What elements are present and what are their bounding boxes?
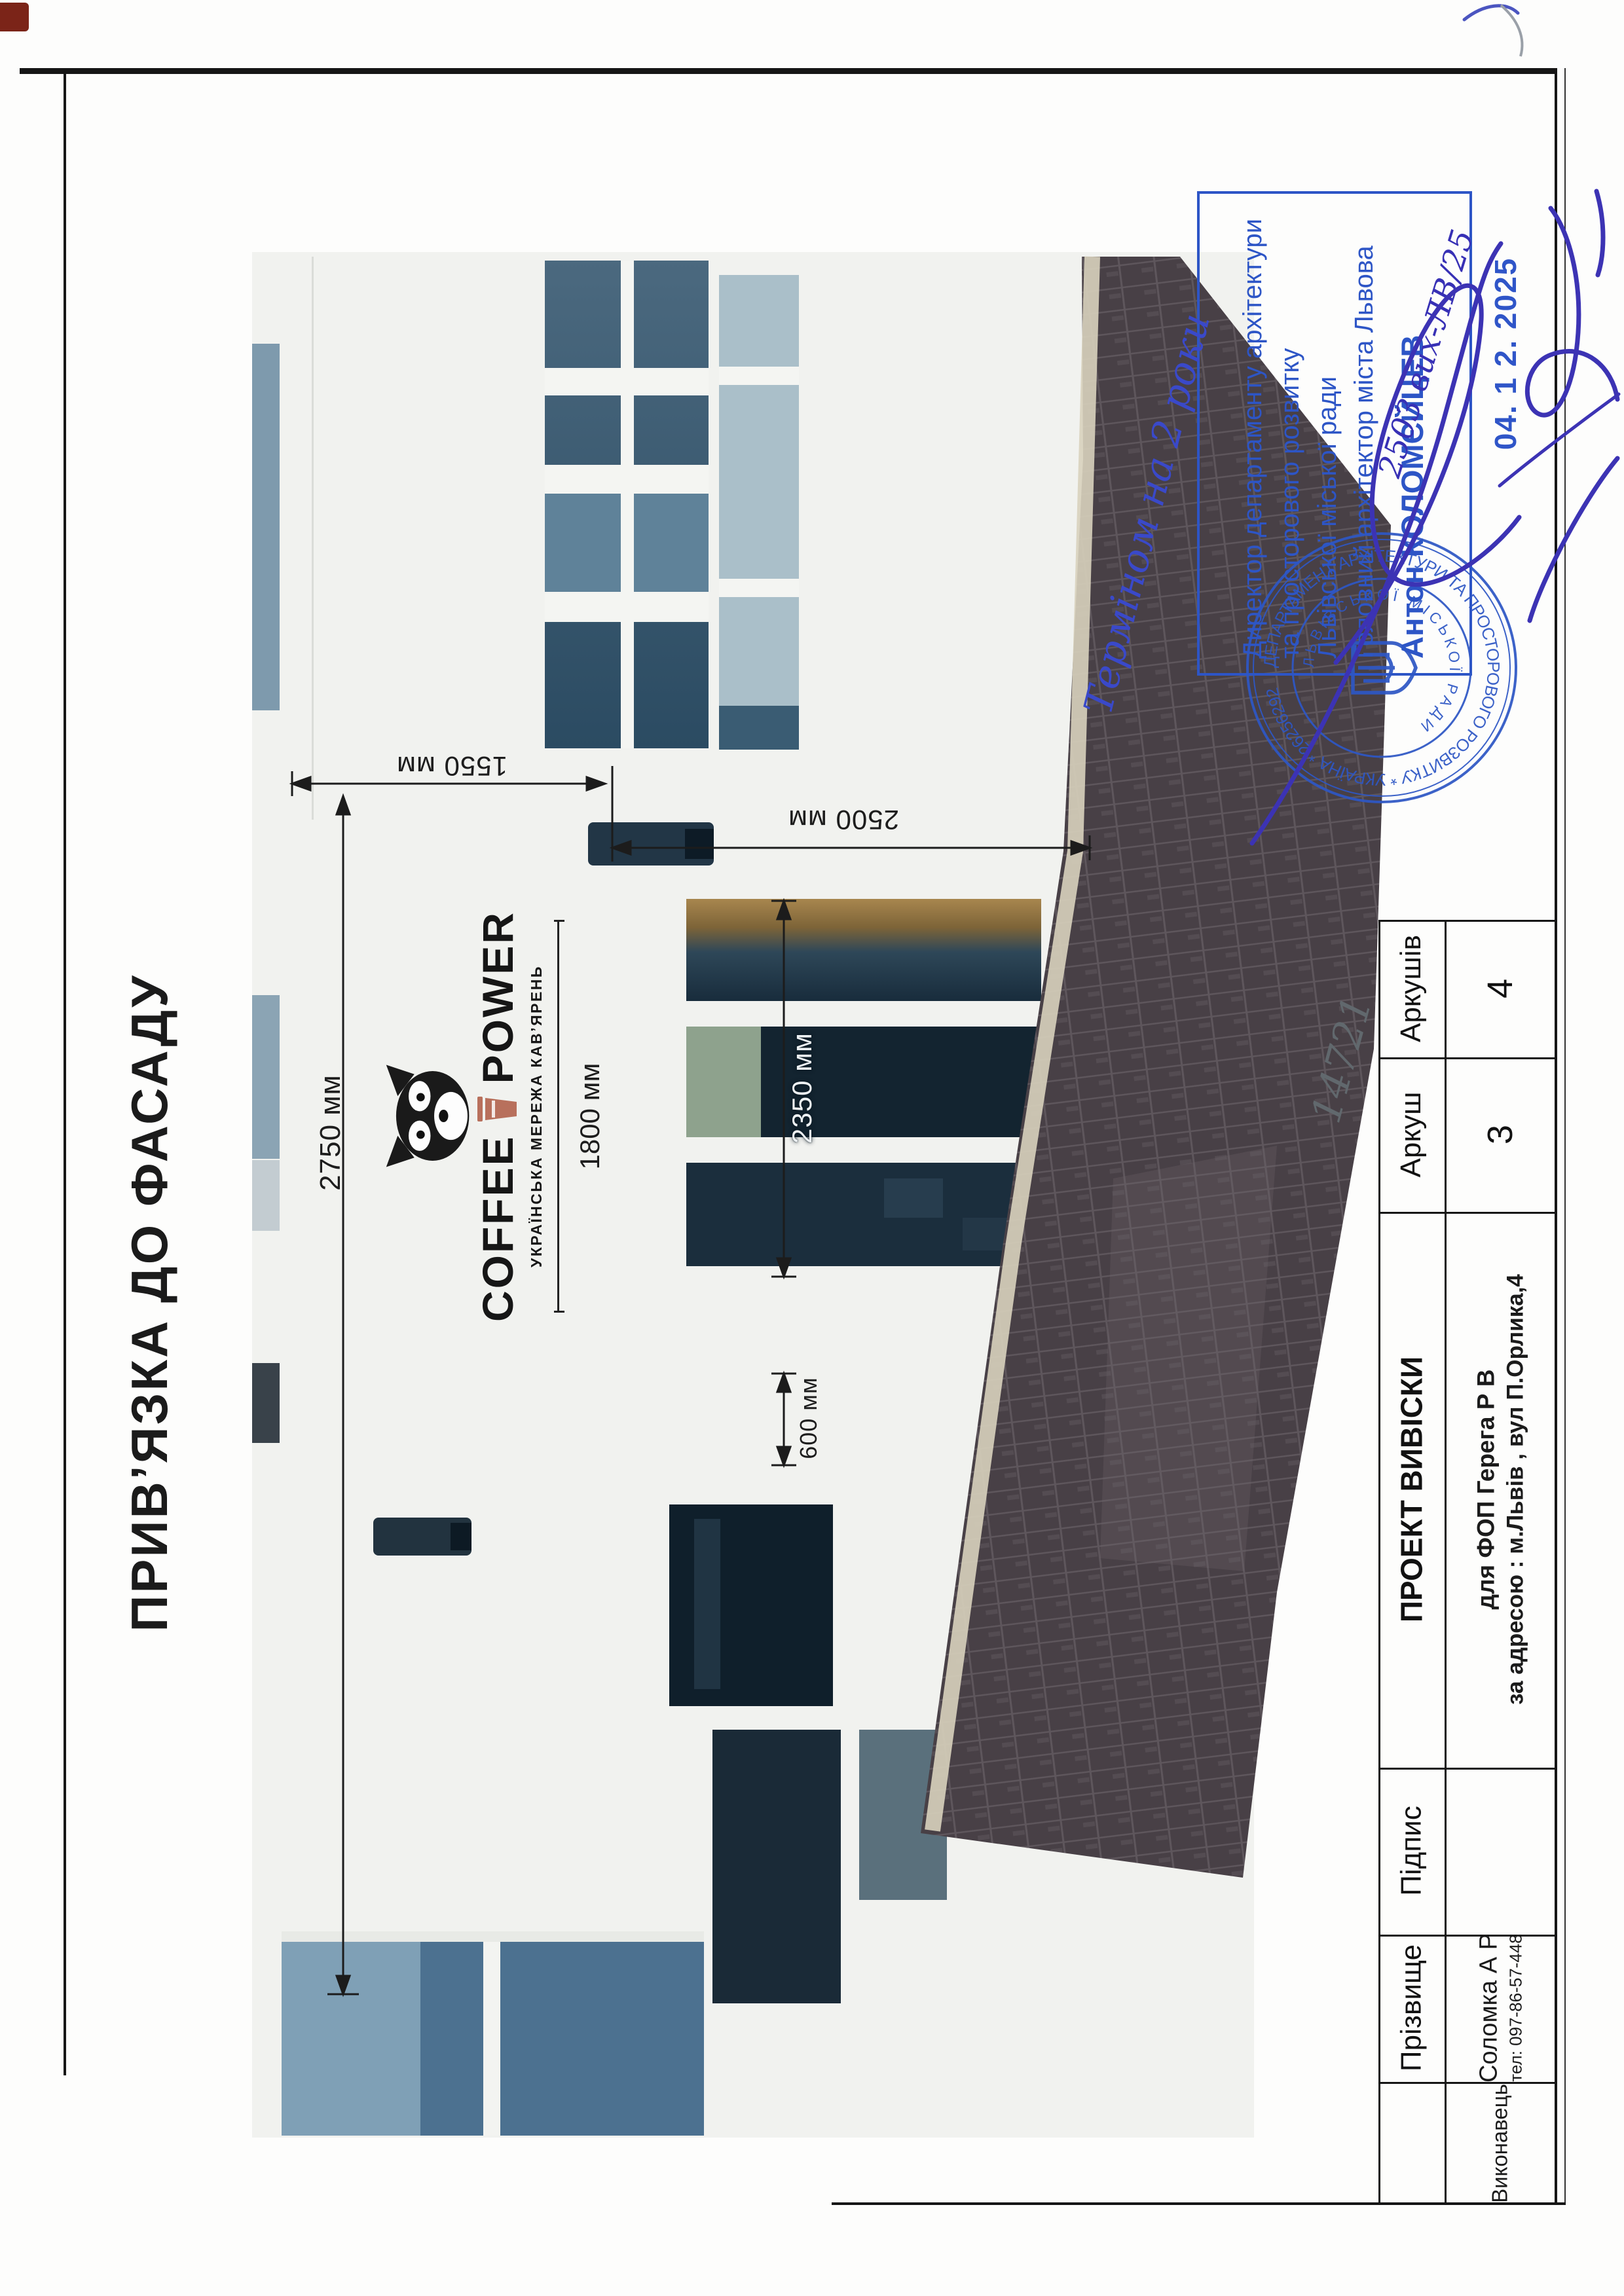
tb-client-line1: для ФОП Герега Р В	[1471, 1370, 1502, 1610]
tb-value-project: для ФОП Герега Р В за адресою : м.Львів …	[1452, 1212, 1550, 1768]
tb-header-arkushiv: Аркушів	[1378, 920, 1444, 1057]
frame-left	[64, 72, 66, 2075]
scanned-sheet: ПРИВ’ЯЗКА ДО ФАСАДУ 2750 мм 1550 мм 2500…	[0, 0, 1624, 2296]
scan-corner-mark	[0, 3, 29, 31]
stamp-line: та просторового розвитку	[1272, 191, 1309, 676]
tb-value-arkush: 3	[1467, 1066, 1533, 1203]
logo-word-power: POWER	[473, 911, 523, 1084]
tb-executor-label: Виконавець	[1474, 2083, 1526, 2204]
dim-label-2500: 2500 мм	[765, 803, 922, 836]
tb-client-line2: за адресою : м.Львів , вул П.Орлика,4	[1502, 1274, 1530, 1705]
tb-header-arkush: Аркуш	[1378, 1066, 1444, 1203]
dim-label-1550: 1550 мм	[373, 750, 530, 782]
upper-window-group	[545, 261, 799, 750]
wall-corner-line	[312, 257, 314, 820]
coffee-cup-icon	[477, 1094, 518, 1124]
stamp-line: Львівської міської ради	[1309, 191, 1346, 676]
frame-right-inner	[1564, 68, 1566, 2204]
coffee-power-sign: COFFEE POWER УКРАЇНСЬКА МЕРЕЖА КАВ’ЯРЕНЬ…	[383, 897, 606, 1336]
date-stamp: 04. 1 2. 2025	[1488, 252, 1522, 455]
approval-stamp-text: Директор департаменту архітектури та про…	[1197, 191, 1472, 676]
dim-label-2750: 2750 мм	[312, 1044, 349, 1221]
tb-header-pidpys: Підпис	[1379, 1768, 1445, 1935]
sign-width-bracket	[557, 920, 568, 1313]
frame-top	[20, 68, 1556, 74]
tb-header-prizvyshche: Прізвище	[1379, 1935, 1445, 2082]
dim-label-2350: 2350 мм	[786, 1010, 819, 1167]
dim-label-1800: 1800 мм	[574, 1063, 606, 1170]
dim-label-600: 600 мм	[794, 1362, 823, 1474]
tb-name: Соломка А Р	[1474, 1933, 1505, 2083]
tb-header-project: ПРОЕКТ ВИВІСКИ	[1379, 1212, 1445, 1768]
page-title: ПРИВ’ЯЗКА ДО ФАСАДУ	[120, 974, 179, 1631]
tb-value-arkushiv: 4	[1467, 920, 1533, 1057]
logo-tagline: УКРАЇНСЬКА МЕРЕЖА КАВ’ЯРЕНЬ	[528, 965, 545, 1267]
logo-word-coffee: COFFEE	[473, 1135, 523, 1322]
tb-phone: тел: 097-86-57-448	[1505, 1934, 1526, 2081]
stamp-line: Головний архітектор міста Львова	[1346, 191, 1383, 676]
frame-right-outer	[1555, 68, 1557, 2204]
stamp-line: Директор департаменту архітектури	[1234, 191, 1272, 676]
raccoon-face-icon	[383, 1059, 471, 1174]
tb-value-name: Соломка А Р тел: 097-86-57-448	[1451, 1935, 1549, 2082]
frame-bottom	[832, 2202, 1566, 2205]
